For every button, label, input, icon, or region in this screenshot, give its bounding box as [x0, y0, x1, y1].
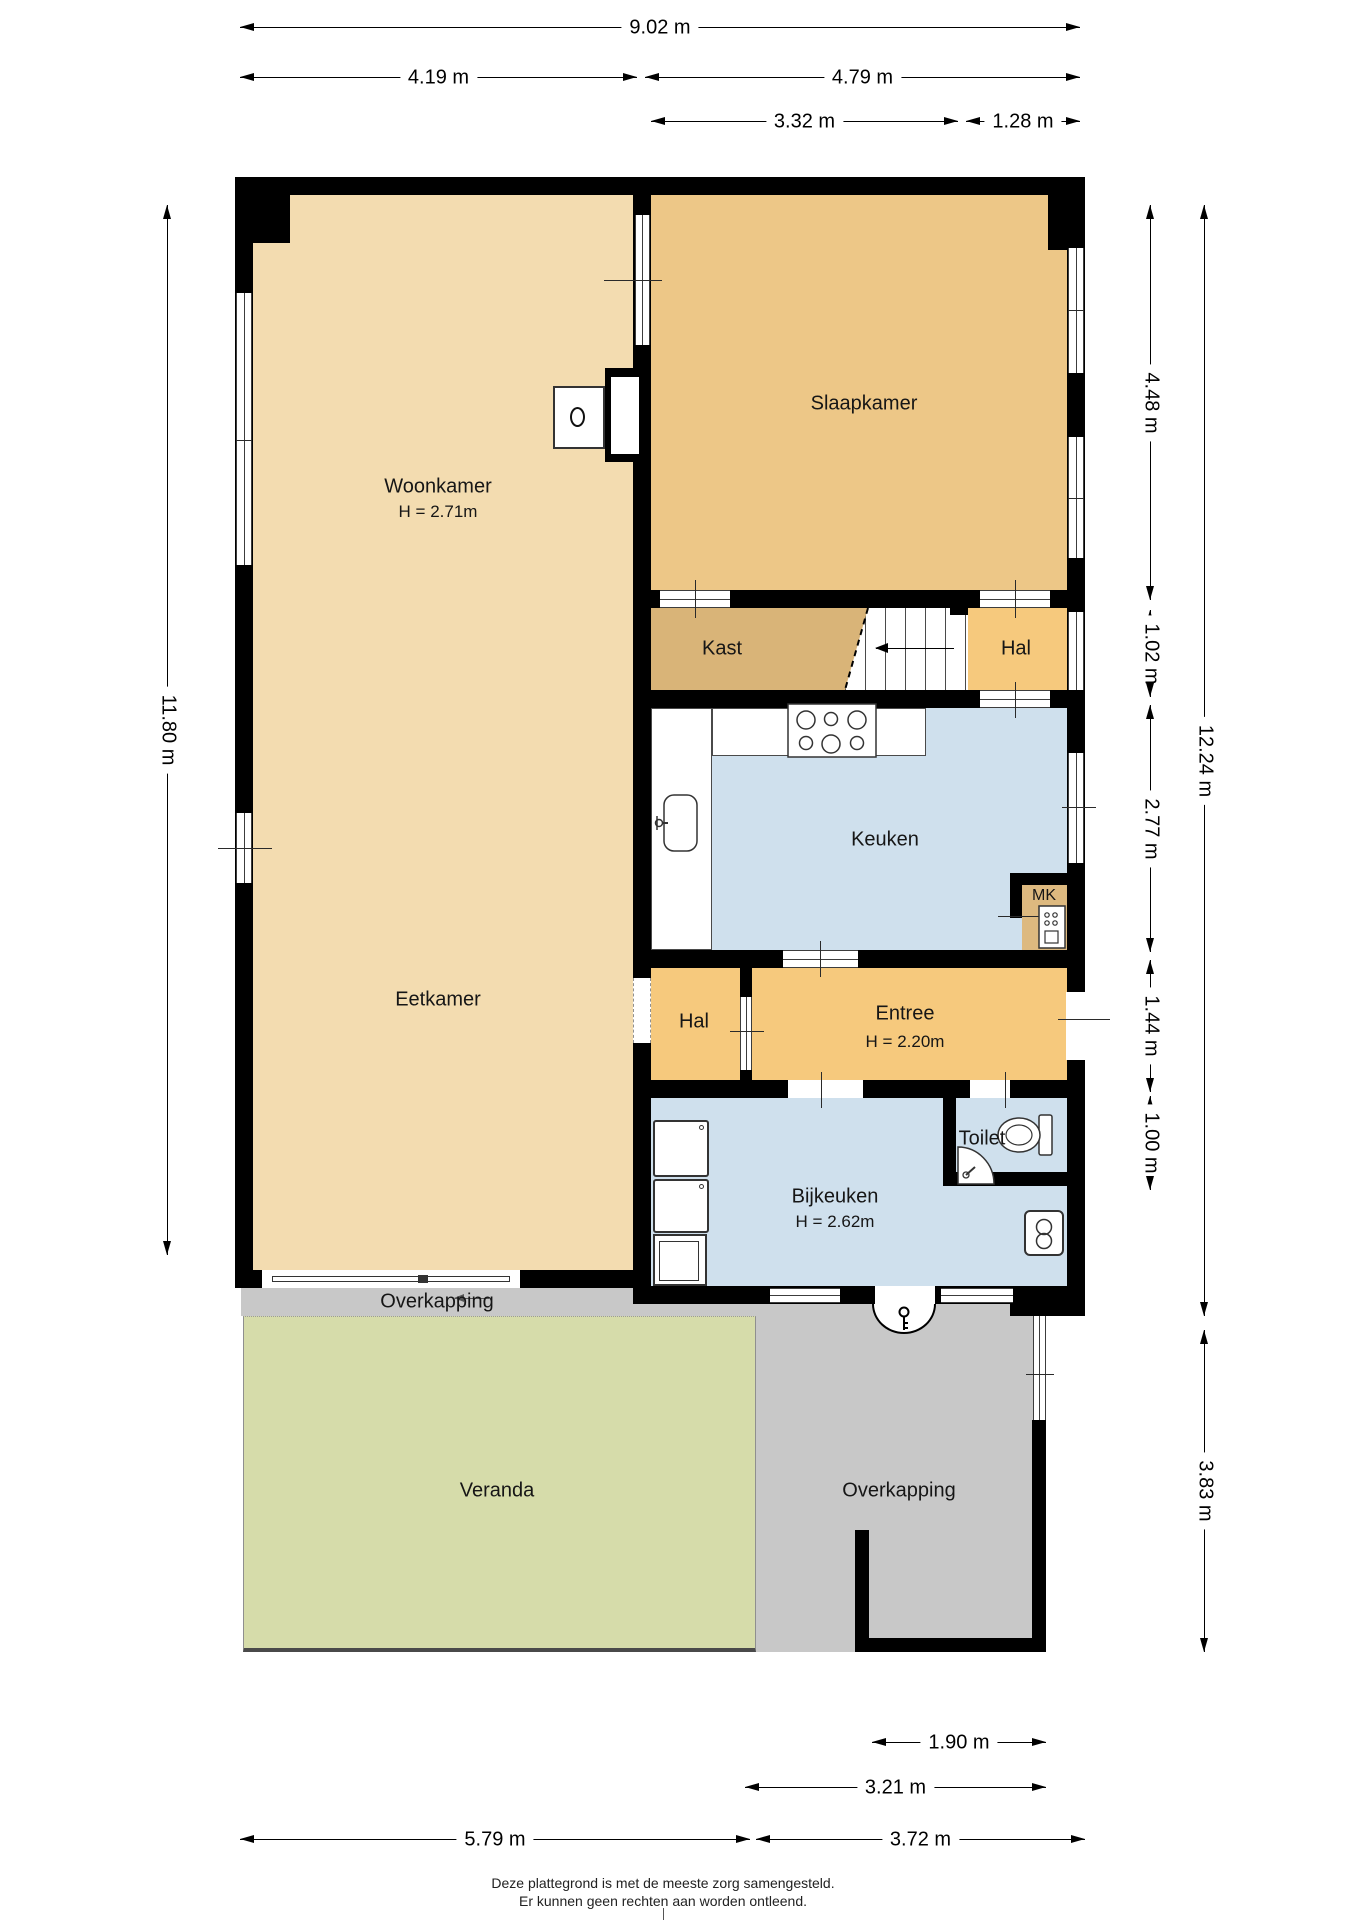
- disclaimer-line1: Deze plattegrond is met de meeste zorg s…: [240, 1874, 1086, 1892]
- dim-label: 1.28 m: [984, 110, 1061, 133]
- dim-label: 9.02 m: [621, 16, 698, 39]
- hob-icon: [787, 703, 877, 758]
- back-door-opening: [875, 1286, 935, 1304]
- dryer-icon: [653, 1179, 709, 1233]
- dim-right-slaapkamer: 4.48 m: [1150, 205, 1151, 600]
- fireplace-flue-icon: [570, 407, 585, 427]
- door-entree-bijkeuken: [788, 1080, 863, 1098]
- tick-door-slaapkamer: [695, 580, 696, 618]
- tick-door-toilet: [1005, 1072, 1006, 1108]
- wall-keuken-bottom: [633, 950, 1085, 968]
- tick-door-hal-north: [1015, 580, 1016, 618]
- door-hal-entree: [740, 997, 752, 1070]
- dim-label: 4.79 m: [824, 66, 901, 89]
- opening-eetkamer-hal: [633, 978, 651, 1043]
- dim-bottom-opening: 1.90 m: [872, 1742, 1046, 1743]
- dim-label: 1.44 m: [1139, 987, 1162, 1064]
- wall-corner-topleft: [235, 177, 290, 243]
- window-bijkeuken-bottom-right: [941, 1288, 1013, 1303]
- dim-label: 5.79 m: [456, 1828, 533, 1851]
- wall-stub-stairs: [950, 590, 968, 615]
- room-label-eetkamer: Eetkamer: [395, 989, 481, 1012]
- glazing-bar-window-left: [236, 440, 252, 441]
- glazing-bar-window-a: [1068, 310, 1084, 311]
- tick-mk-door: [998, 916, 1042, 917]
- mk-appliance-icon: [1038, 905, 1066, 949]
- room-kast: [651, 608, 868, 690]
- wall-pillar-bottom-right: [1010, 1286, 1085, 1316]
- room-height-woonkamer: H = 2.71m: [399, 502, 478, 522]
- dim-right-overkapping: 3.83 m: [1204, 1330, 1205, 1652]
- room-label-entree: Entree: [876, 1003, 935, 1026]
- sliding-door-handle: [418, 1275, 428, 1283]
- dim-right-entree: 1.44 m: [1150, 960, 1151, 1092]
- boiler-icon: [1024, 1210, 1064, 1256]
- dim-label: 2.77 m: [1139, 790, 1162, 867]
- window-hal-right: [1068, 612, 1084, 690]
- dim-top-inner-right: 1.28 m: [966, 121, 1080, 122]
- fireplace-niche: [611, 377, 639, 454]
- room-label-kast: Kast: [702, 638, 742, 661]
- wall-mk-left: [1010, 885, 1022, 918]
- room-label-keuken: Keuken: [851, 829, 919, 852]
- stairs-cut-dashed-line: [845, 608, 868, 690]
- wall-canopy-L-vertical: [855, 1530, 869, 1652]
- window-keuken-right: [1068, 753, 1084, 863]
- dim-bottom-left: 5.79 m: [240, 1839, 750, 1840]
- dryer-hinge-icon: [699, 1184, 704, 1189]
- wall-canopy-right: [1032, 1420, 1046, 1652]
- room-label-toilet: Toilet: [959, 1128, 1006, 1151]
- tick-window-canopy: [1026, 1374, 1054, 1375]
- wall-mk-top: [1010, 873, 1067, 885]
- dim-right-full: 12.24 m: [1204, 205, 1205, 1316]
- dim-label: 12.24 m: [1193, 716, 1216, 804]
- room-woonkamer-eetkamer: [253, 195, 633, 1270]
- room-height-entree: H = 2.20m: [866, 1032, 945, 1052]
- kitchen-sink-icon: [654, 792, 700, 854]
- room-label-mk: MK: [1032, 887, 1056, 905]
- room-label-hal-top: Hal: [1001, 638, 1031, 661]
- utility-sink-basin: [659, 1241, 699, 1281]
- sliding-door-rail: [272, 1276, 510, 1282]
- wall-hal-door-lower: [740, 1070, 752, 1080]
- dim-right-toilet: 1.00 m: [1150, 1096, 1151, 1190]
- tick-window-left-dining: [218, 848, 272, 849]
- dim-label: 3.83 m: [1193, 1452, 1216, 1529]
- floorplan-canvas: Woonkamer H = 2.71m Slaapkamer Kast Hal …: [0, 0, 1358, 1920]
- dim-label: 11.80 m: [156, 687, 179, 774]
- dim-right-keuken: 2.77 m: [1150, 705, 1151, 952]
- dim-label: 1.90 m: [920, 1731, 997, 1754]
- window-bijkeuken-bottom-left: [770, 1288, 840, 1303]
- wall-top: [235, 177, 1085, 195]
- dim-bottom-right: 3.72 m: [756, 1839, 1085, 1840]
- door-toilet: [970, 1080, 1010, 1098]
- key-icon: [897, 1306, 911, 1332]
- dim-right-hal: 1.02 m: [1150, 610, 1151, 697]
- room-label-bijkeuken: Bijkeuken: [792, 1186, 879, 1209]
- disclaimer: Deze plattegrond is met de meeste zorg s…: [240, 1874, 1086, 1910]
- dim-label: 1.02 m: [1139, 615, 1162, 692]
- dim-label: 3.32 m: [766, 110, 843, 133]
- stairs-direction-arrow-icon: [876, 648, 954, 649]
- tick-window-division: [604, 280, 662, 281]
- front-door-opening: [1066, 992, 1086, 1060]
- tick-door-hal-entree: [730, 1031, 764, 1032]
- dim-top-right: 4.79 m: [645, 77, 1080, 78]
- room-label-woonkamer: Woonkamer: [384, 476, 491, 499]
- dim-label: 1.00 m: [1139, 1104, 1162, 1181]
- wall-corner-topright: [1048, 177, 1085, 250]
- wall-canopy-L-horizontal: [855, 1638, 1046, 1652]
- tick-door-bijkeuken: [821, 1072, 822, 1108]
- corner-sink-icon: [957, 1146, 995, 1186]
- dim-label: 4.19 m: [400, 66, 477, 89]
- dim-bottom-overkapping: 3.21 m: [745, 1787, 1046, 1788]
- window-canopy-right: [1033, 1316, 1046, 1420]
- room-label-slaapkamer: Slaapkamer: [811, 393, 918, 416]
- dim-label: 3.21 m: [857, 1776, 934, 1799]
- dim-label: 3.72 m: [882, 1828, 959, 1851]
- tick-front-door: [1058, 1019, 1110, 1020]
- wall-division-center: [633, 195, 651, 1270]
- room-label-veranda: Veranda: [460, 1480, 535, 1503]
- dim-top-inner-left: 3.32 m: [651, 121, 958, 122]
- washer-icon: [653, 1120, 709, 1177]
- room-height-bijkeuken: H = 2.62m: [796, 1212, 875, 1232]
- tick-door-keuken: [820, 941, 821, 977]
- washer-hinge-icon: [699, 1125, 704, 1130]
- room-label-overkapping-top: Overkapping: [380, 1291, 493, 1314]
- tick-door-hal-south: [1015, 682, 1016, 718]
- page-bottom-tick: [663, 1908, 664, 1920]
- glazing-bar-window-b: [1068, 498, 1084, 499]
- dim-label: 4.48 m: [1139, 364, 1162, 441]
- tick-window-keuken: [1062, 807, 1096, 808]
- room-label-hal-bottom: Hal: [679, 1011, 709, 1034]
- dim-top-full: 9.02 m: [240, 27, 1080, 28]
- wall-hal-door-upper: [740, 968, 752, 997]
- dim-left-full: 11.80 m: [167, 205, 168, 1255]
- window-left-living: [236, 293, 252, 565]
- dim-top-left: 4.19 m: [240, 77, 637, 78]
- room-label-overkapping-right: Overkapping: [842, 1480, 955, 1503]
